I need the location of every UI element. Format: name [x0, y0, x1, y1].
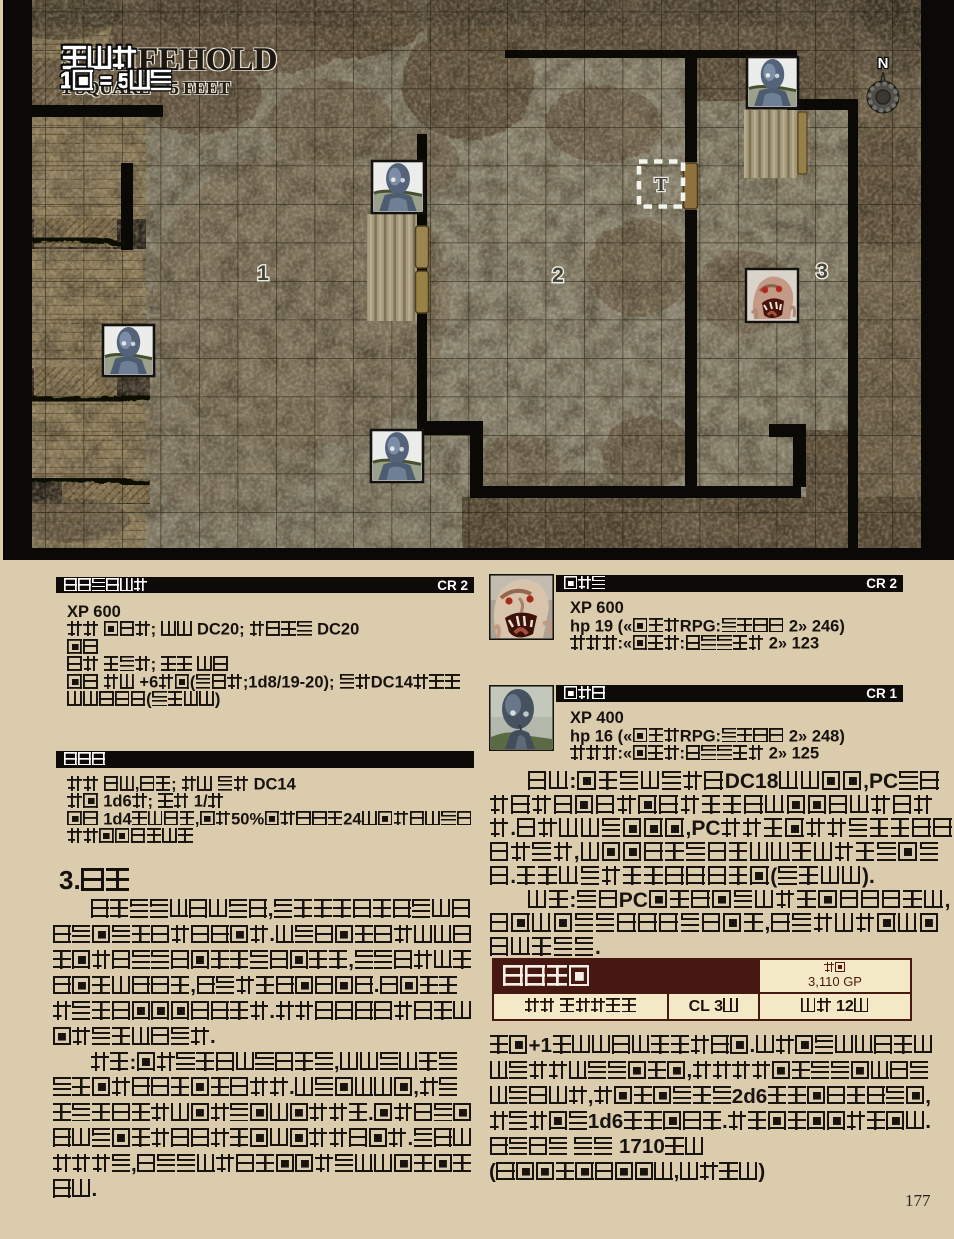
svg-text:N: N	[878, 55, 889, 72]
svg-text:2: 2	[552, 264, 564, 287]
svg-text:1: 1	[257, 262, 269, 285]
svg-text:3: 3	[816, 260, 828, 283]
svg-text:T: T	[654, 174, 668, 196]
